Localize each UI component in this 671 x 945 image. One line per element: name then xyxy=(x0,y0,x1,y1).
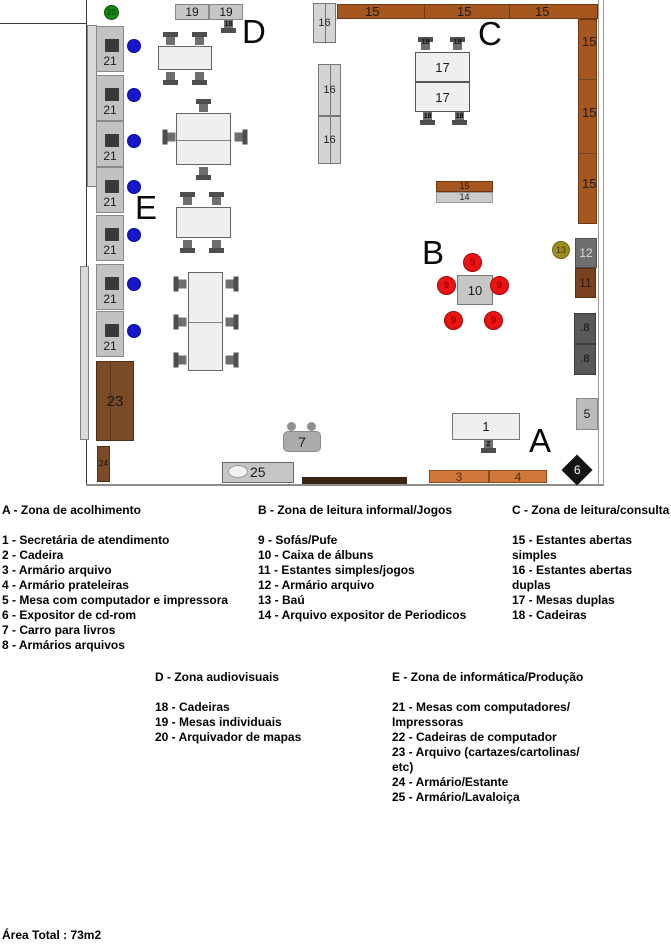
legend-item: 22 - Cadeiras de computador xyxy=(392,730,590,745)
shelf-15-label: 15 xyxy=(582,35,596,48)
cabinet-24: 24 xyxy=(97,446,110,482)
item-label: 21 xyxy=(97,339,123,353)
shelf-16-top: 16 xyxy=(313,3,336,43)
item-label: 21 xyxy=(97,243,123,257)
legend-item: 16 - Estantes abertas duplas xyxy=(512,563,670,593)
computer-icon xyxy=(105,180,119,193)
zone-letter-b: B xyxy=(422,236,444,269)
item-label: 9 xyxy=(444,281,449,290)
legend-item: 2 - Cadeira xyxy=(2,548,254,563)
item-label: 20 xyxy=(107,9,116,17)
chair-18: 18 xyxy=(221,19,236,33)
sink-basin xyxy=(228,465,248,478)
item-label: .8 xyxy=(580,323,589,334)
shelf-15-label: 15 xyxy=(457,5,471,18)
computer-chair-22 xyxy=(127,134,141,148)
table-17-lower: 17 xyxy=(415,82,470,112)
zone-letter-d: D xyxy=(242,15,266,48)
legend-zone-b-items: 9 - Sofás/Pufe10 - Caixa de álbuns11 - E… xyxy=(258,533,508,623)
shelf-15-right xyxy=(578,19,597,224)
legend-zone-e-heading: E - Zona de informática/Produção xyxy=(392,670,590,685)
shelf-15-label: 15 xyxy=(582,106,596,119)
legend-zone-b: B - Zona de leitura informal/Jogos 9 - S… xyxy=(258,503,508,623)
table-17-upper: 17 xyxy=(415,52,470,82)
computer-chair-22 xyxy=(127,277,141,291)
item-label: 7 xyxy=(298,435,306,449)
item-label: 9 xyxy=(497,281,502,290)
item-label: 9 xyxy=(491,316,496,325)
table-19: 19 xyxy=(175,4,209,20)
chair-18: 18 xyxy=(450,37,465,51)
archive-8: .8 xyxy=(574,344,596,375)
legend-item: 3 - Armário arquivo xyxy=(2,563,254,578)
computer-desk-21: 21 xyxy=(96,311,124,357)
legend-item: 11 - Estantes simples/jogos xyxy=(258,563,508,578)
wall-bottom xyxy=(86,484,604,486)
chair xyxy=(180,192,195,206)
sofa-9: 9 xyxy=(484,311,503,330)
chair xyxy=(162,130,177,144)
computer-desk-21: 21 xyxy=(96,75,124,121)
item-label: 21 xyxy=(97,292,123,306)
computer-chair-22 xyxy=(127,39,141,53)
periodicals-14: 14 xyxy=(436,192,493,203)
book-cart-wheel xyxy=(287,422,296,431)
item-label: 9 xyxy=(470,258,475,267)
item-label: .8 xyxy=(580,354,589,365)
legend-zone-a: A - Zona de acolhimento 1 - Secretária d… xyxy=(2,503,254,653)
archive-12: 12 xyxy=(575,238,597,268)
item-label: 24 xyxy=(99,460,108,468)
legend-item: 12 - Armário arquivo xyxy=(258,578,508,593)
computer-chair-22 xyxy=(127,88,141,102)
item-label: 19 xyxy=(219,6,232,18)
archive-23: 23 xyxy=(96,361,134,441)
legend-zone-b-heading: B - Zona de leitura informal/Jogos xyxy=(258,503,508,518)
legend-item: 17 - Mesas duplas xyxy=(512,593,670,608)
item-label: 3 xyxy=(456,471,463,483)
zone-letter-e: E xyxy=(135,191,157,224)
item-label: 9 xyxy=(451,316,456,325)
map-archive-20: 20 xyxy=(104,5,119,20)
item-label: 12 xyxy=(579,247,592,259)
computer-chair-22 xyxy=(127,180,141,194)
table-double xyxy=(188,272,223,371)
sofa-9: 9 xyxy=(437,276,456,295)
item-label: 21 xyxy=(97,149,123,163)
chair xyxy=(224,277,239,291)
wall-strip-left-lower xyxy=(80,266,89,440)
chair xyxy=(224,315,239,329)
book-cart-wheel xyxy=(307,422,316,431)
floor-plan: 161515151515151616C171718181818D19191820… xyxy=(0,0,671,490)
item-label: 19 xyxy=(185,6,198,18)
legend-item: 19 - Mesas individuais xyxy=(155,715,387,730)
computer-icon xyxy=(105,88,119,101)
item-label: 15 xyxy=(459,182,469,191)
chair xyxy=(163,71,178,85)
computer-desk-21: 21 xyxy=(96,121,124,167)
legend-item: 15 - Estantes abertas simples xyxy=(512,533,670,563)
chair xyxy=(233,130,248,144)
computer-desk-21: 21 xyxy=(96,167,124,213)
computer-icon xyxy=(105,228,119,241)
legend-zone-a-items: 1 - Secretária de atendimento2 - Cadeira… xyxy=(2,533,254,653)
legend-item: 9 - Sofás/Pufe xyxy=(258,533,508,548)
computer-icon xyxy=(105,39,119,52)
area-total: Área Total : 73m2 xyxy=(2,928,101,942)
chair xyxy=(173,277,188,291)
periodicals-15: 15 xyxy=(436,181,493,192)
chair xyxy=(192,32,207,46)
legend-zone-e: E - Zona de informática/Produção 21 - Me… xyxy=(392,670,590,805)
computer-icon xyxy=(105,277,119,290)
chair xyxy=(180,239,195,253)
legend-zone-c-heading: C - Zona de leitura/consulta xyxy=(512,503,670,518)
sofa-9: 9 xyxy=(444,311,463,330)
chair-18: 18 xyxy=(420,111,435,125)
item-label: 21 xyxy=(97,195,123,209)
bau-13: 13 xyxy=(552,241,570,259)
wall-segment-dark xyxy=(302,477,407,484)
chair xyxy=(163,32,178,46)
chair xyxy=(196,99,211,113)
computer-table-5: 5 xyxy=(576,398,598,430)
wall-right-outer xyxy=(603,0,604,486)
item-label: 5 xyxy=(584,408,591,420)
legend-zone-e-items: 21 - Mesas com computadores/ Impressoras… xyxy=(392,700,590,805)
computer-chair-22 xyxy=(127,228,141,242)
legend-item: 20 - Arquivador de mapas xyxy=(155,730,387,745)
chair-18: 18 xyxy=(452,111,467,125)
legend-item: 13 - Baú xyxy=(258,593,508,608)
chair xyxy=(173,353,188,367)
item-label: 21 xyxy=(97,54,123,68)
sofa-9: 9 xyxy=(490,276,509,295)
table-individual xyxy=(176,207,231,238)
legend-item: 10 - Caixa de álbuns xyxy=(258,548,508,563)
shelf-15-label: 15 xyxy=(535,5,549,18)
zone-letter-c: C xyxy=(478,17,502,50)
legend-item: 8 - Armários arquivos xyxy=(2,638,254,653)
page: 161515151515151616C171718181818D19191820… xyxy=(0,0,671,945)
cdrom-display-6: 6 xyxy=(561,454,592,485)
legend-zone-d-heading: D - Zona audiovisuais xyxy=(155,670,387,685)
chair xyxy=(209,192,224,206)
legend-item: 7 - Carro para livros xyxy=(2,623,254,638)
item-label: 1 xyxy=(482,420,489,433)
item-label: 17 xyxy=(435,61,449,74)
sink-cabinet-25-label: 25 xyxy=(250,465,266,479)
shelf-15-label: 15 xyxy=(582,177,596,190)
computer-desk-21: 21 xyxy=(96,215,124,261)
legend-item: 4 - Armário prateleiras xyxy=(2,578,254,593)
shelf-16-double-lower: 16 xyxy=(318,116,341,164)
item-label: 14 xyxy=(459,193,469,202)
computer-chair-22 xyxy=(127,324,141,338)
archive-3: 3 xyxy=(429,470,489,483)
legend-item: 6 - Expositor de cd-rom xyxy=(2,608,254,623)
chair xyxy=(209,239,224,253)
legend-item: 5 - Mesa com computador e impressora xyxy=(2,593,254,608)
computer-icon xyxy=(105,324,119,337)
shelf-15-label: 15 xyxy=(365,5,379,18)
zone-letter-a: A xyxy=(529,424,551,457)
legend-zone-c: C - Zona de leitura/consulta 15 - Estant… xyxy=(512,503,670,623)
wall-top-left-edge xyxy=(0,23,87,24)
computer-icon xyxy=(105,134,119,147)
legend-item: 21 - Mesas com computadores/ Impressoras xyxy=(392,700,590,730)
games-shelf-11: 11 xyxy=(575,268,596,298)
wall-right-inner xyxy=(598,0,599,486)
book-cart-7: 7 xyxy=(283,431,321,452)
legend-item: 25 - Armário/Lavaloiça xyxy=(392,790,590,805)
item-label: 17 xyxy=(435,91,449,104)
item-label: 13 xyxy=(556,246,566,255)
album-box-10: 10 xyxy=(457,275,493,305)
item-label: 4 xyxy=(515,471,522,483)
table-individual xyxy=(158,46,212,70)
table-19: 19 xyxy=(209,4,243,20)
computer-desk-21: 21 xyxy=(96,26,124,72)
reception-desk-1: 1 xyxy=(452,413,520,440)
legend-item: 1 - Secretária de atendimento xyxy=(2,533,254,548)
table-double xyxy=(176,113,231,165)
chair xyxy=(192,71,207,85)
item-label: 11 xyxy=(579,277,591,289)
legend-zone-c-items: 15 - Estantes abertas simples16 - Estant… xyxy=(512,533,670,623)
chair xyxy=(173,315,188,329)
legend-zone-a-heading: A - Zona de acolhimento xyxy=(2,503,254,518)
legend-item: 18 - Cadeiras xyxy=(155,700,387,715)
legend-zone-d: D - Zona audiovisuais 18 - Cadeiras19 - … xyxy=(155,670,387,745)
legend-item: 23 - Arquivo (cartazes/cartolinas/ etc) xyxy=(392,745,590,775)
item-label: 21 xyxy=(97,103,123,117)
legend-item: 24 - Armário/Estante xyxy=(392,775,590,790)
shelf-16-double-upper: 16 xyxy=(318,64,341,116)
legend-item: 14 - Arquivo expositor de Periodicos xyxy=(258,608,508,623)
archive-8: .8 xyxy=(574,313,596,344)
chair-2: 2 xyxy=(481,439,496,453)
chair xyxy=(196,166,211,180)
computer-desk-21: 21 xyxy=(96,264,124,310)
item-label: 10 xyxy=(468,284,482,297)
legend-zone-d-items: 18 - Cadeiras19 - Mesas individuais20 - … xyxy=(155,700,387,745)
legend-item: 18 - Cadeiras xyxy=(512,608,670,623)
sofa-9: 9 xyxy=(463,253,482,272)
shelf-cabinet-4: 4 xyxy=(489,470,547,483)
chair xyxy=(224,353,239,367)
chair-18: 18 xyxy=(418,37,433,51)
